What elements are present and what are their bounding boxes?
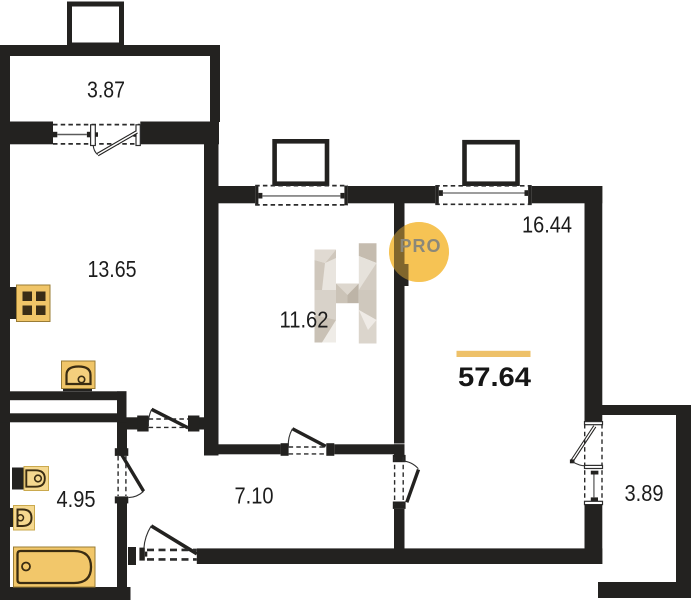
svg-text:3.89: 3.89 (625, 480, 664, 506)
svg-text:3.87: 3.87 (87, 77, 125, 103)
svg-text:7.10: 7.10 (235, 483, 274, 509)
svg-text:57.64: 57.64 (458, 362, 531, 392)
svg-text:16.44: 16.44 (522, 212, 572, 238)
svg-text:PRO: PRO (399, 236, 441, 256)
svg-text:11.62: 11.62 (280, 307, 329, 333)
svg-text:13.65: 13.65 (88, 256, 137, 282)
svg-text:4.95: 4.95 (57, 486, 96, 512)
